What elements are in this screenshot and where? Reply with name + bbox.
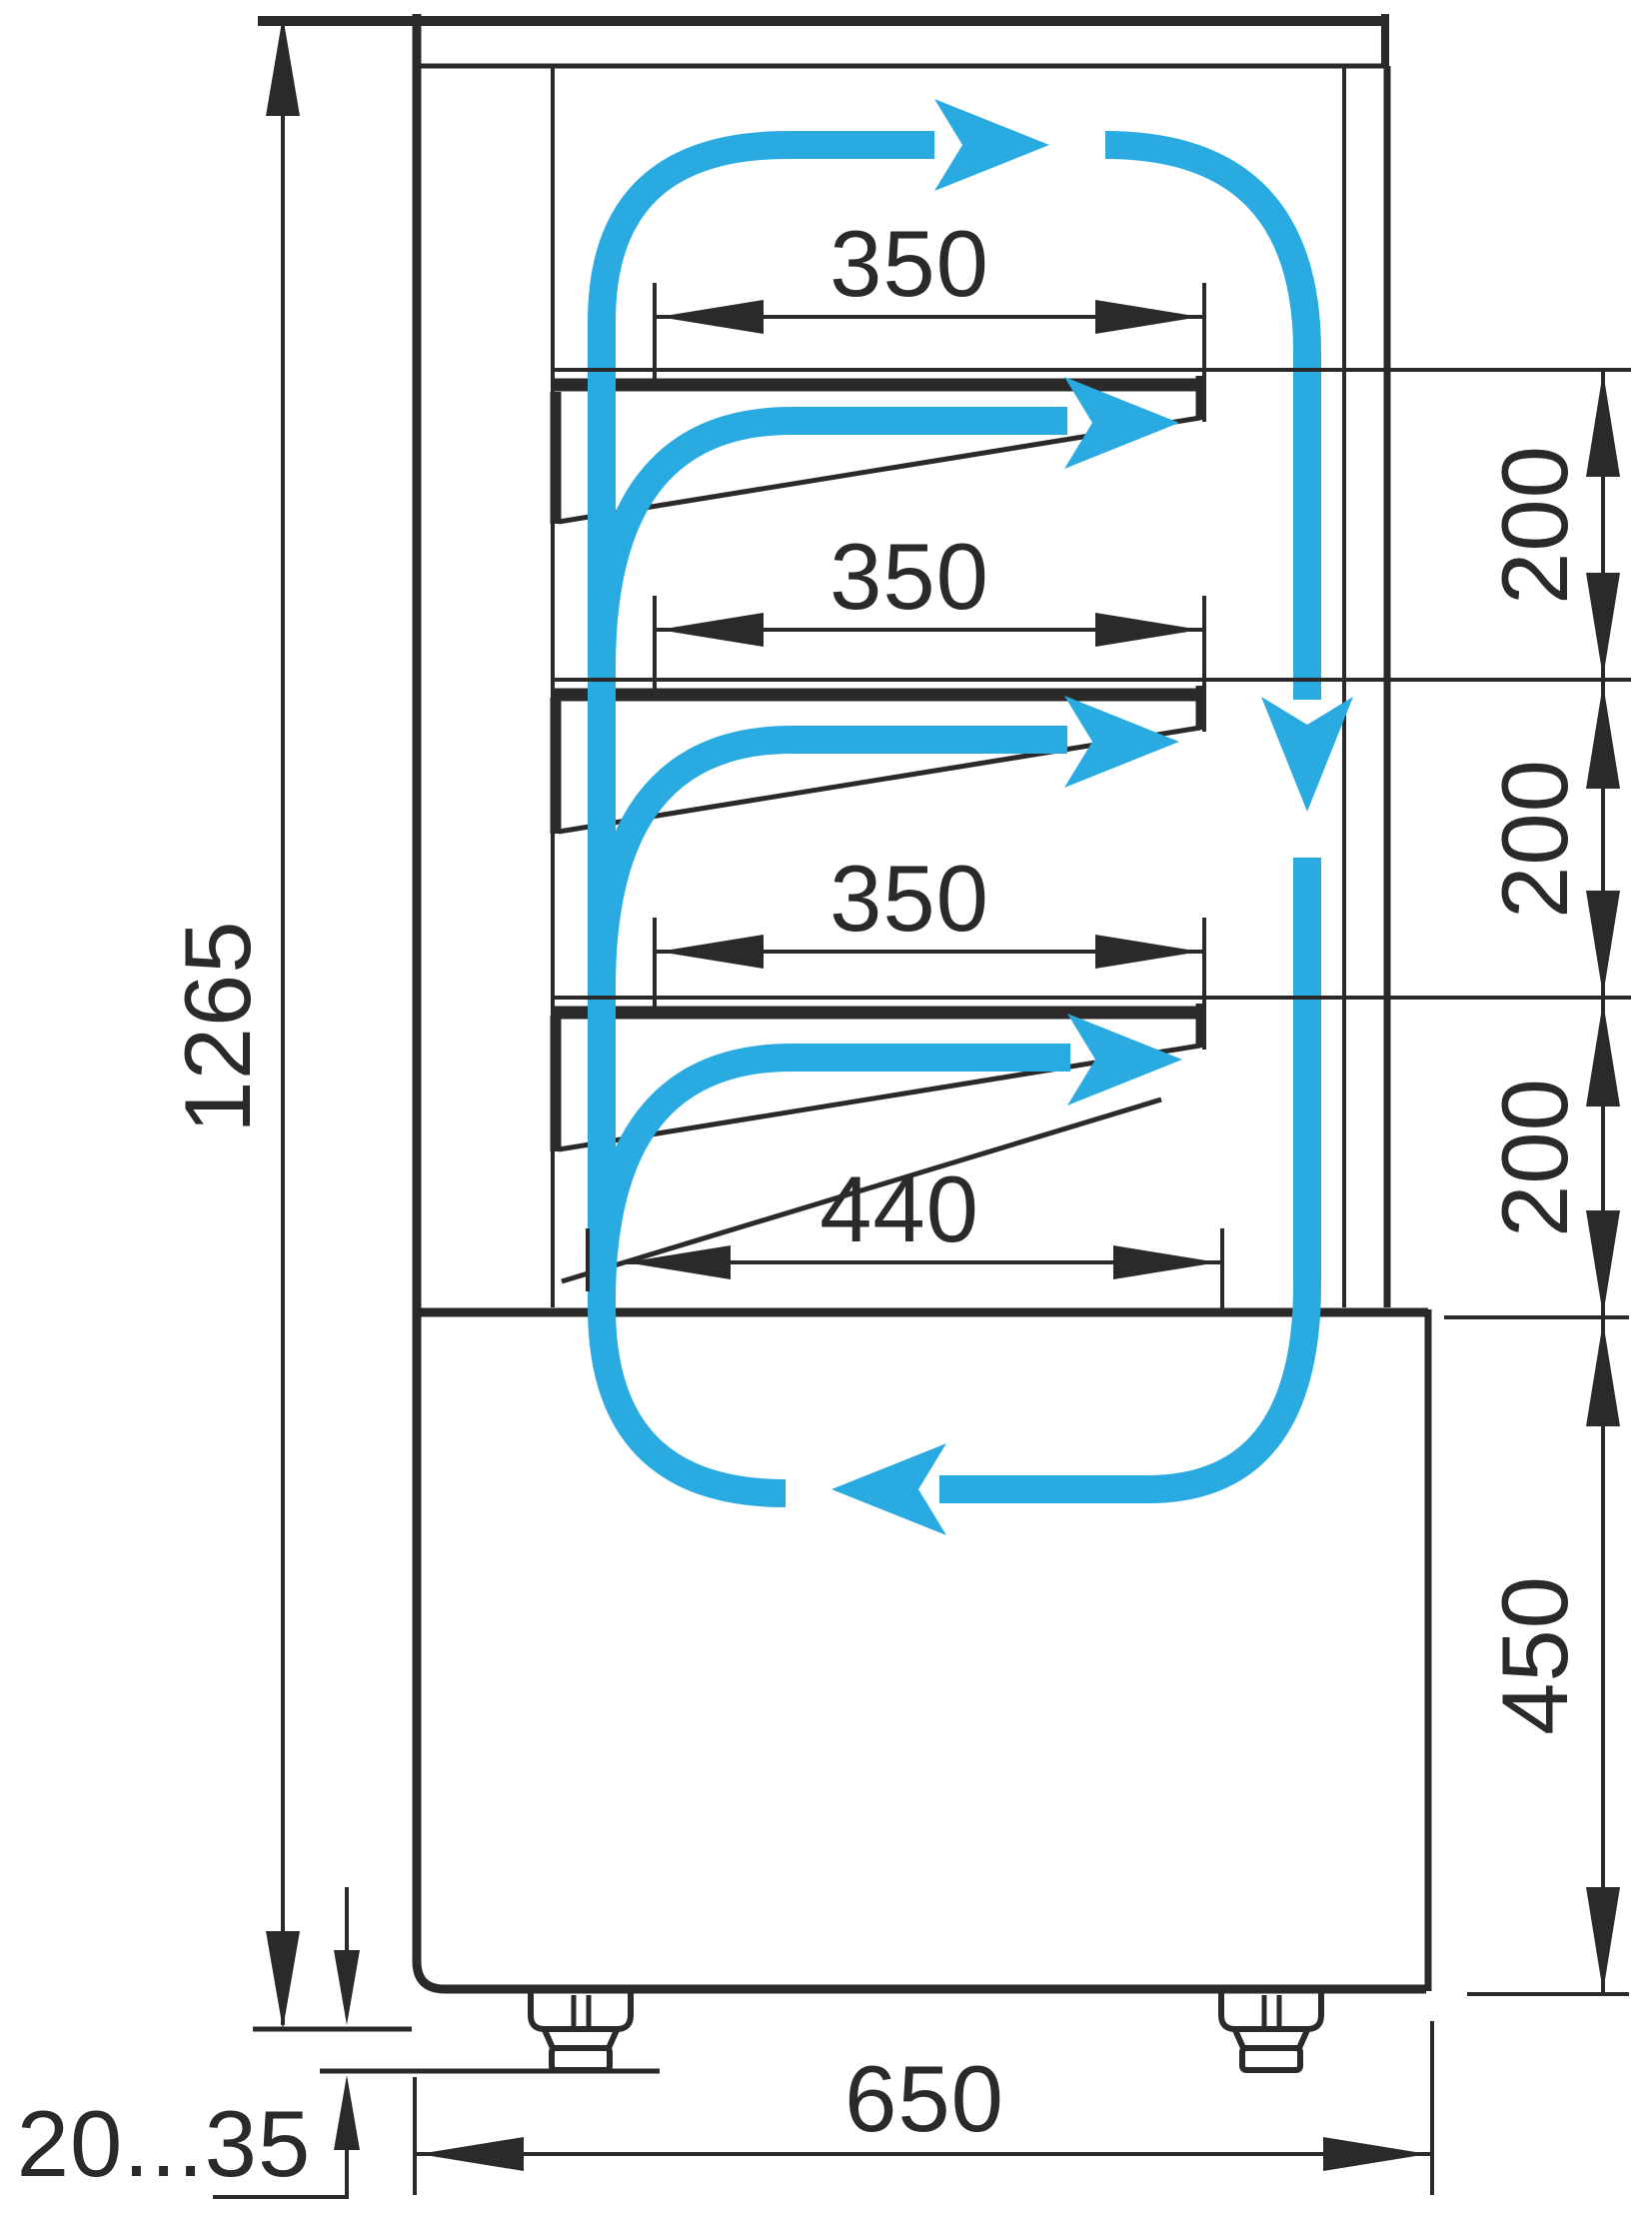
foot-left-bracket xyxy=(531,1993,631,2029)
cabinet-structure xyxy=(258,14,1428,2070)
arrow-up-icon xyxy=(1586,684,1620,789)
dim-650-label: 650 xyxy=(844,2046,1004,2151)
foot-right xyxy=(1221,1993,1321,2070)
arrow-up-icon xyxy=(1586,1002,1620,1106)
airflow-return-arrow-icon xyxy=(831,1443,946,1535)
arrow-up-icon xyxy=(1586,1321,1620,1426)
arrow-left-icon xyxy=(659,613,764,647)
arrow-right-icon xyxy=(1323,2137,1428,2171)
arrow-left-icon xyxy=(659,935,764,969)
arrow-right-icon xyxy=(1095,935,1200,969)
dim-200-bottom-label: 200 xyxy=(1482,1078,1587,1237)
dim-1265-label: 1265 xyxy=(165,920,270,1132)
arrow-down-icon xyxy=(266,1931,300,2029)
airflow-down-arrow-icon xyxy=(1261,697,1353,812)
arrow-left-icon xyxy=(626,1245,731,1279)
arrow-right-icon xyxy=(1095,300,1200,334)
dim-20-35-label: 20...35 xyxy=(17,2091,311,2196)
drawing-svg: 1265 200 200 200 450 350 xyxy=(0,0,1652,2213)
airflow-top-arrow-icon xyxy=(934,99,1049,191)
dim-440-label: 440 xyxy=(820,1156,979,1261)
dim-200-middle-label: 200 xyxy=(1482,759,1587,919)
arrow-down-icon xyxy=(1586,1887,1620,1992)
foot-left xyxy=(531,1993,631,2070)
dim-350-lower-label: 350 xyxy=(829,846,989,951)
arrow-down-icon xyxy=(334,1950,360,2025)
airflow-shelf-arrow-2-icon xyxy=(1064,696,1179,788)
arrow-up-icon xyxy=(266,16,300,116)
arrow-up-icon xyxy=(1586,372,1620,477)
technical-drawing-display-case-section: 1265 200 200 200 450 350 xyxy=(0,0,1652,2213)
dim-350-middle-label: 350 xyxy=(829,524,989,629)
foot-right-bracket xyxy=(1221,1993,1321,2029)
dim-base-shelf-depth: 440 xyxy=(588,1156,1222,1309)
arrow-right-icon xyxy=(1095,613,1200,647)
arrow-left-icon xyxy=(419,2137,524,2171)
foot-right-base xyxy=(1242,2048,1300,2070)
dim-right-chain: 200 200 200 450 xyxy=(1482,368,1620,1995)
arrow-left-icon xyxy=(659,300,764,334)
dim-feet-adjust: 20...35 xyxy=(17,1887,660,2197)
arrow-right-icon xyxy=(1113,1245,1218,1279)
foot-left-base xyxy=(552,2048,610,2070)
dim-overall-height: 1265 xyxy=(165,16,300,2029)
arrow-down-icon xyxy=(1586,573,1620,678)
arrow-down-icon xyxy=(1586,891,1620,996)
arrow-down-icon xyxy=(1586,1210,1620,1315)
dim-350-top-label: 350 xyxy=(829,211,989,316)
dim-450-label: 450 xyxy=(1482,1575,1587,1735)
airflow-shelf-arrow-3-icon xyxy=(1067,1014,1182,1106)
dim-200-top-label: 200 xyxy=(1482,445,1587,605)
arrow-up-icon xyxy=(334,2075,360,2150)
